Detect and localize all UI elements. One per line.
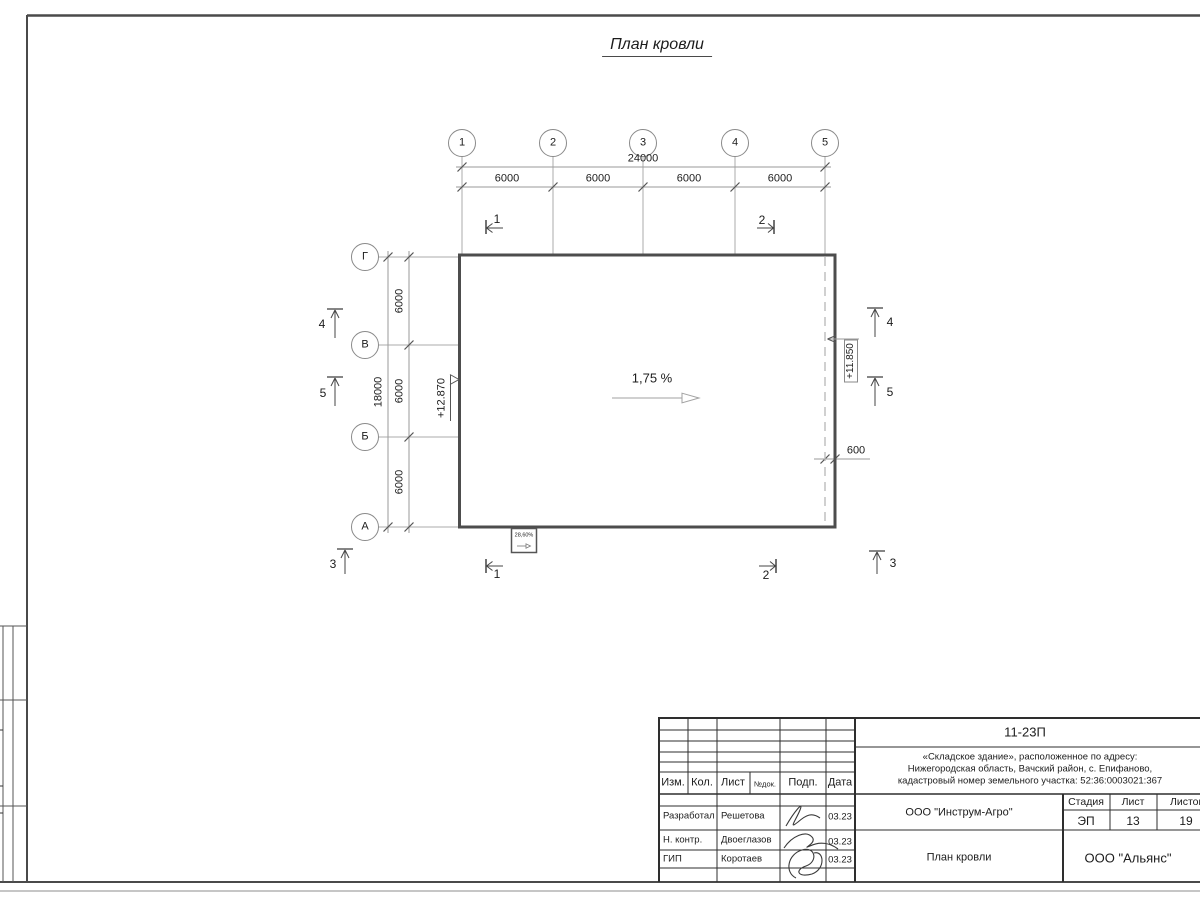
slope-arrow (612, 393, 699, 403)
view-3-right-label: 3 (890, 557, 897, 569)
elevation-right-label: +11.850 (846, 343, 856, 379)
project-address-line3: кадастровый номер земельного участка: 52… (898, 776, 1162, 786)
section-cut-2-bottom-label: 2 (763, 569, 770, 581)
axis-label-5: 5 (822, 138, 828, 149)
sheet-name: План кровли (927, 853, 992, 864)
grid-lines (378, 156, 825, 527)
view-4-right-label: 4 (887, 316, 894, 328)
view-4-left-label: 4 (319, 318, 326, 330)
dimension-ticks (384, 163, 840, 532)
detail-slope-label: 28,60% (515, 533, 534, 539)
left-side-stamp (0, 626, 27, 882)
section-marks (486, 220, 776, 573)
axis-label-g: Г (362, 252, 368, 263)
col-header-kol: Кол. (691, 778, 713, 789)
axis-label-2: 2 (550, 138, 556, 149)
row-role-ncontrol: Н. контр. (663, 835, 702, 845)
stage-header: Стадия (1068, 797, 1104, 808)
slope-label: 1,75 % (632, 372, 672, 385)
dim-span-1: 6000 (495, 174, 519, 185)
section-cut-1-bottom-label: 1 (494, 568, 501, 580)
axis-label-1: 1 (459, 138, 465, 149)
col-header-ndok: №док. (754, 780, 776, 788)
view-5-left-label: 5 (320, 387, 327, 399)
section-cut-2-top-label: 2 (759, 214, 766, 226)
elevation-left-label: +12.870 (437, 378, 448, 418)
drawing-title: План кровли (602, 37, 712, 57)
view-arrows (327, 308, 885, 574)
stage-value: ЭП (1077, 815, 1094, 827)
project-address-line2: Нижегородская область, Вачский район, с.… (908, 764, 1152, 774)
project-address-line1: «Складское здание», расположенное по адр… (923, 752, 1138, 762)
row-date-ncontrol: 03.23 (828, 837, 852, 847)
dim-total-vertical: 18000 (374, 377, 385, 408)
dim-vspan-1: 6000 (395, 289, 406, 313)
view-5-right-label: 5 (887, 386, 894, 398)
row-name-gip: Коротаев (721, 854, 762, 864)
dim-vspan-2: 6000 (395, 379, 406, 403)
row-name-ncontrol: Двоеглазов (721, 835, 772, 845)
building-walls (458, 254, 837, 529)
sheet-no-header: Лист (1122, 797, 1145, 808)
doc-number: 11-23П (1004, 726, 1046, 739)
dim-span-3: 6000 (677, 174, 701, 185)
row-role-developer: Разработал (663, 811, 715, 821)
axis-label-b: Б (361, 432, 368, 443)
dim-vspan-3: 6000 (395, 470, 406, 494)
col-header-data: Дата (828, 778, 852, 789)
sheets-total-value: 19 (1179, 815, 1192, 827)
col-header-izm: Изм. (661, 778, 685, 789)
axis-label-3: 3 (640, 138, 646, 149)
section-cut-1-top-label: 1 (494, 213, 501, 225)
sheet-no-value: 13 (1126, 815, 1139, 827)
sheets-total-header: Листов (1170, 797, 1200, 808)
axis-label-4: 4 (732, 138, 738, 149)
axis-label-a: А (361, 522, 368, 533)
dim-total-horizontal: 24000 (628, 154, 659, 165)
drawing-sheet: План кровли 1 2 3 4 5 Г В Б А 24000 6000… (0, 0, 1200, 900)
contractor-name: ООО "Альянс" (1085, 852, 1172, 865)
axis-label-v: В (361, 340, 368, 351)
row-date-gip: 03.23 (828, 855, 852, 865)
row-role-gip: ГИП (663, 854, 682, 864)
company-name: ООО "Инструм-Агро" (905, 808, 1012, 819)
row-date-developer: 03.23 (828, 812, 852, 822)
row-name-developer: Решетова (721, 811, 765, 821)
col-header-list: Лист (721, 778, 745, 789)
dim-span-2: 6000 (586, 174, 610, 185)
col-header-podp: Подп. (788, 778, 817, 789)
axis-bubbles (352, 130, 839, 541)
view-3-left-label: 3 (330, 558, 337, 570)
dim-span-4: 6000 (768, 174, 792, 185)
dim-overhang: 600 (847, 446, 865, 457)
